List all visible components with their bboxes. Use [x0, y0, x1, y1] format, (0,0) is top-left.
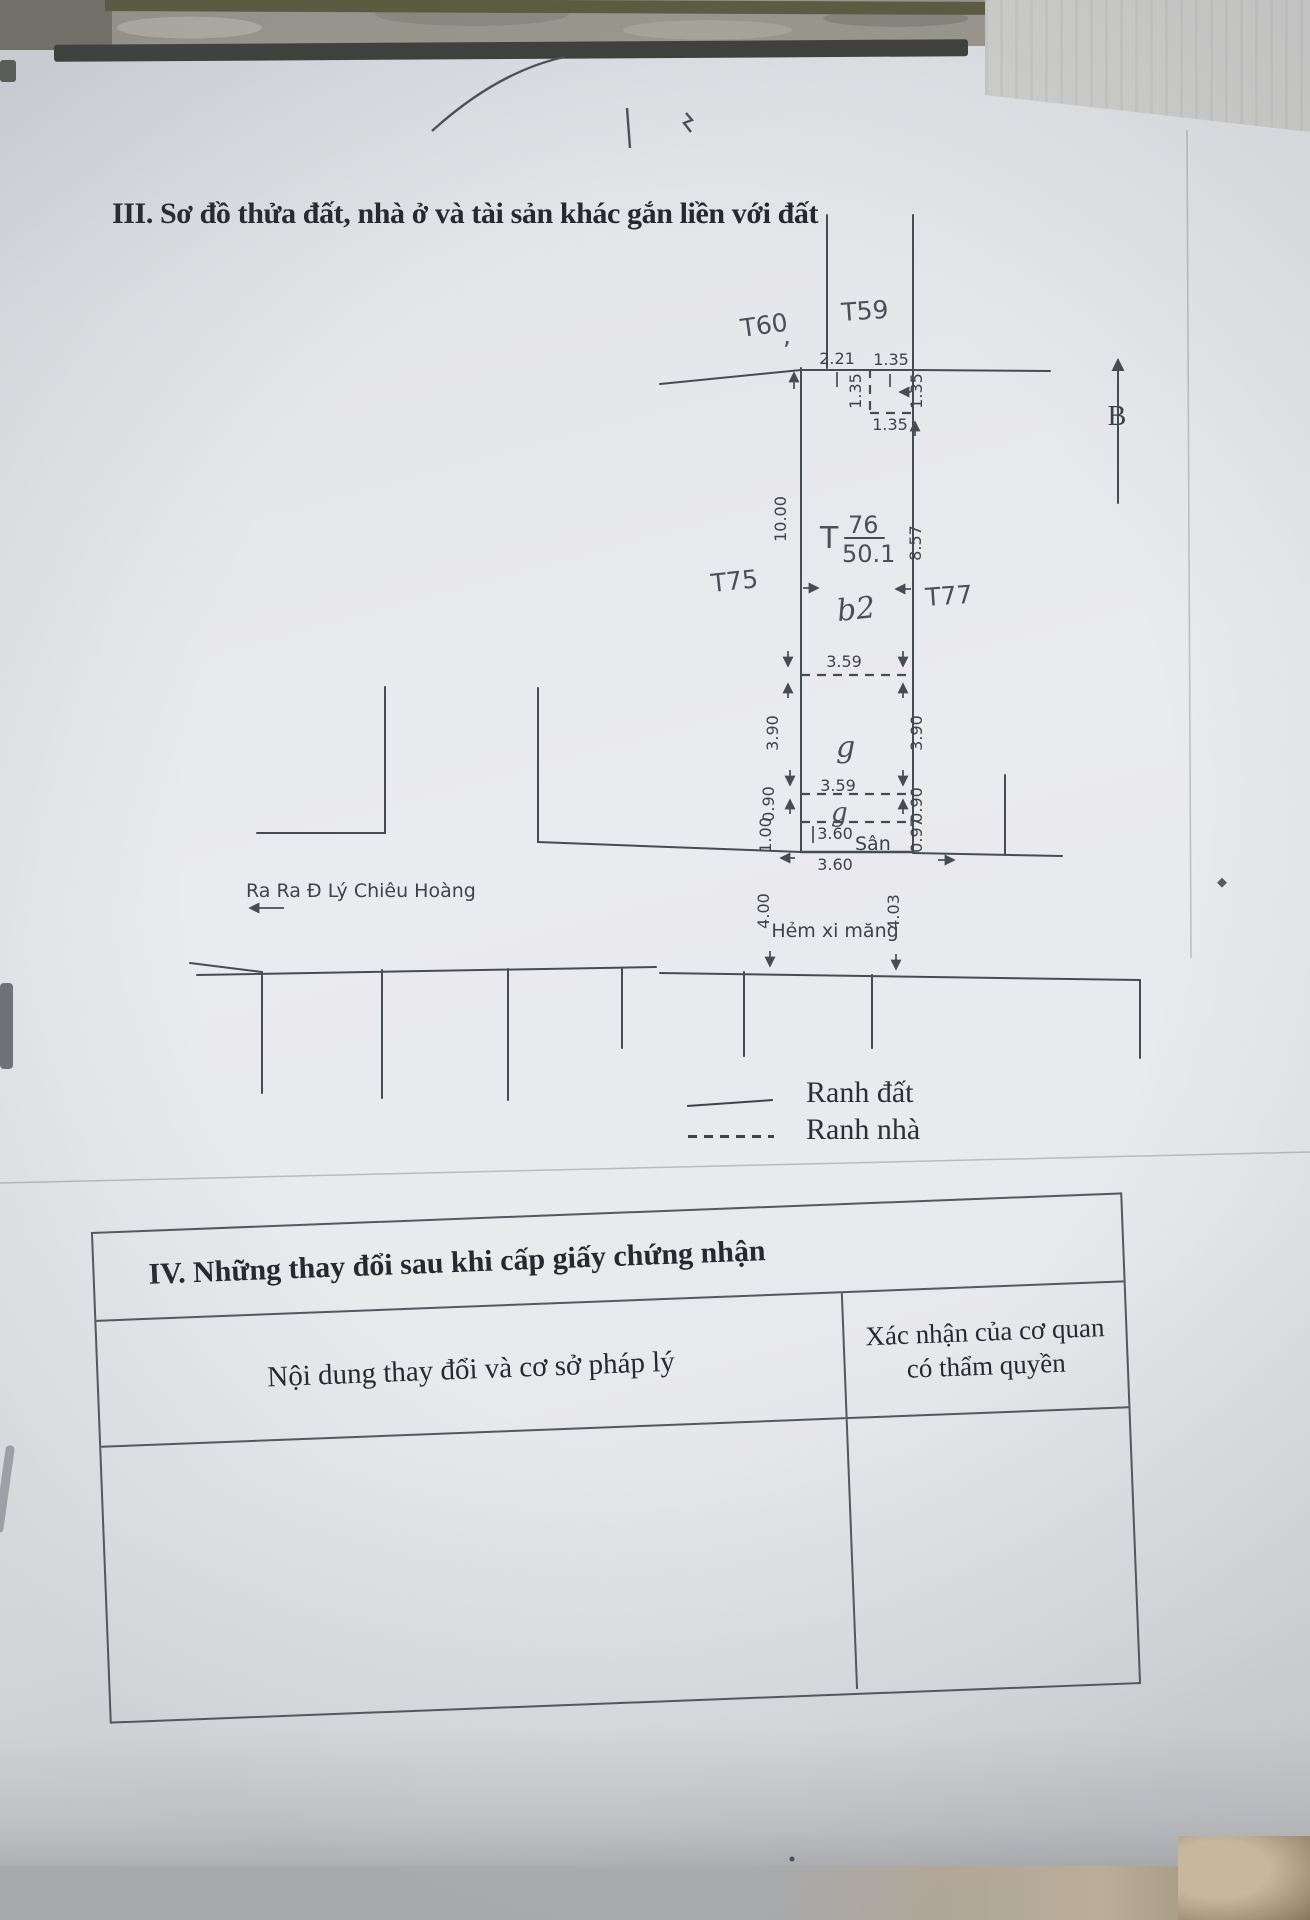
dim-width-2: 3.59 — [820, 776, 856, 795]
house-b2-label: b2 — [835, 590, 877, 629]
dim-top-left: 2.21 — [819, 349, 855, 368]
plot-t76-area: 50.1 — [842, 540, 895, 568]
plot-t76-number: 76 — [848, 511, 879, 539]
plot-t60-comma: , — [783, 321, 791, 350]
dim-bottom-width: 3.60 — [817, 855, 853, 874]
street-note-label: Ra Ra Đ Lý Chiêu Hoàng — [246, 880, 476, 902]
column-header-confirmation: Xác nhận của cơ quan có thẩm quyền — [841, 1282, 1129, 1419]
dim-side-left-2: 0.90 — [759, 786, 778, 822]
dim-side-left-1: 3.90 — [763, 715, 782, 751]
plot-labels: T60 , T59 T75 T77 T 76 50.1 b2 g g Sân — [709, 295, 974, 855]
dim-depth-right: 8.57 — [906, 525, 925, 561]
street-lines — [190, 963, 1140, 1100]
section4-title: IV. Những thay đổi sau khi cấp giấy chứn… — [148, 1234, 766, 1292]
dim-yard-left: 1.00 — [756, 817, 775, 853]
alley-name-label: Hẻm xi măng — [771, 920, 898, 942]
house-g-lower-label: g — [831, 798, 848, 828]
dim-width-1: 3.59 — [826, 652, 862, 671]
north-arrow: B — [1108, 360, 1127, 503]
dim-depth-left: 10.00 — [771, 496, 790, 542]
desk-strip — [0, 1866, 1310, 1920]
plot-t77-label: T77 — [923, 580, 973, 612]
dim-notch-left: 1.35 — [846, 373, 865, 409]
dim-notch-bottom: 1.35 — [872, 415, 908, 434]
column-header-confirmation-line2: có thẩm quyền — [906, 1347, 1066, 1387]
table-empty-cell-confirmation — [846, 1408, 1139, 1689]
dim-side-right-1: 3.90 — [907, 715, 926, 751]
column-header-content-label: Nội dung thay đổi và cơ sở pháp lý — [267, 1345, 676, 1394]
plot-t75-label: T75 — [709, 564, 760, 598]
page-curl-shadow — [0, 1726, 1310, 1872]
table-empty-cell-content — [101, 1419, 856, 1717]
north-label: B — [1108, 401, 1127, 432]
plot-t60-label: T60 — [738, 308, 790, 343]
section4-table: IV. Những thay đổi sau khi cấp giấy chứn… — [91, 1192, 1141, 1723]
dim-top-right: 1.35 — [873, 350, 909, 369]
parcel-boundary-lines — [257, 215, 1062, 856]
legend-land-boundary-label: Ranh đất — [806, 1076, 913, 1110]
yard-label: Sân — [855, 833, 891, 855]
dim-notch-right: 1.35 — [907, 373, 926, 409]
legend-dashed-line — [688, 1135, 774, 1138]
desk-corner-blob — [1178, 1836, 1310, 1920]
column-header-confirmation-line1: Xác nhận của cơ quan — [865, 1311, 1105, 1354]
dim-yard-right: 0.97 — [907, 817, 926, 853]
legend-house-boundary-label: Ranh nhà — [806, 1113, 920, 1147]
plot-t59-label: T59 — [839, 295, 889, 327]
dim-alley-left: 4.00 — [754, 893, 773, 929]
house-g-upper-label: g — [836, 730, 855, 765]
plot-t76-prefix: T — [819, 521, 839, 556]
